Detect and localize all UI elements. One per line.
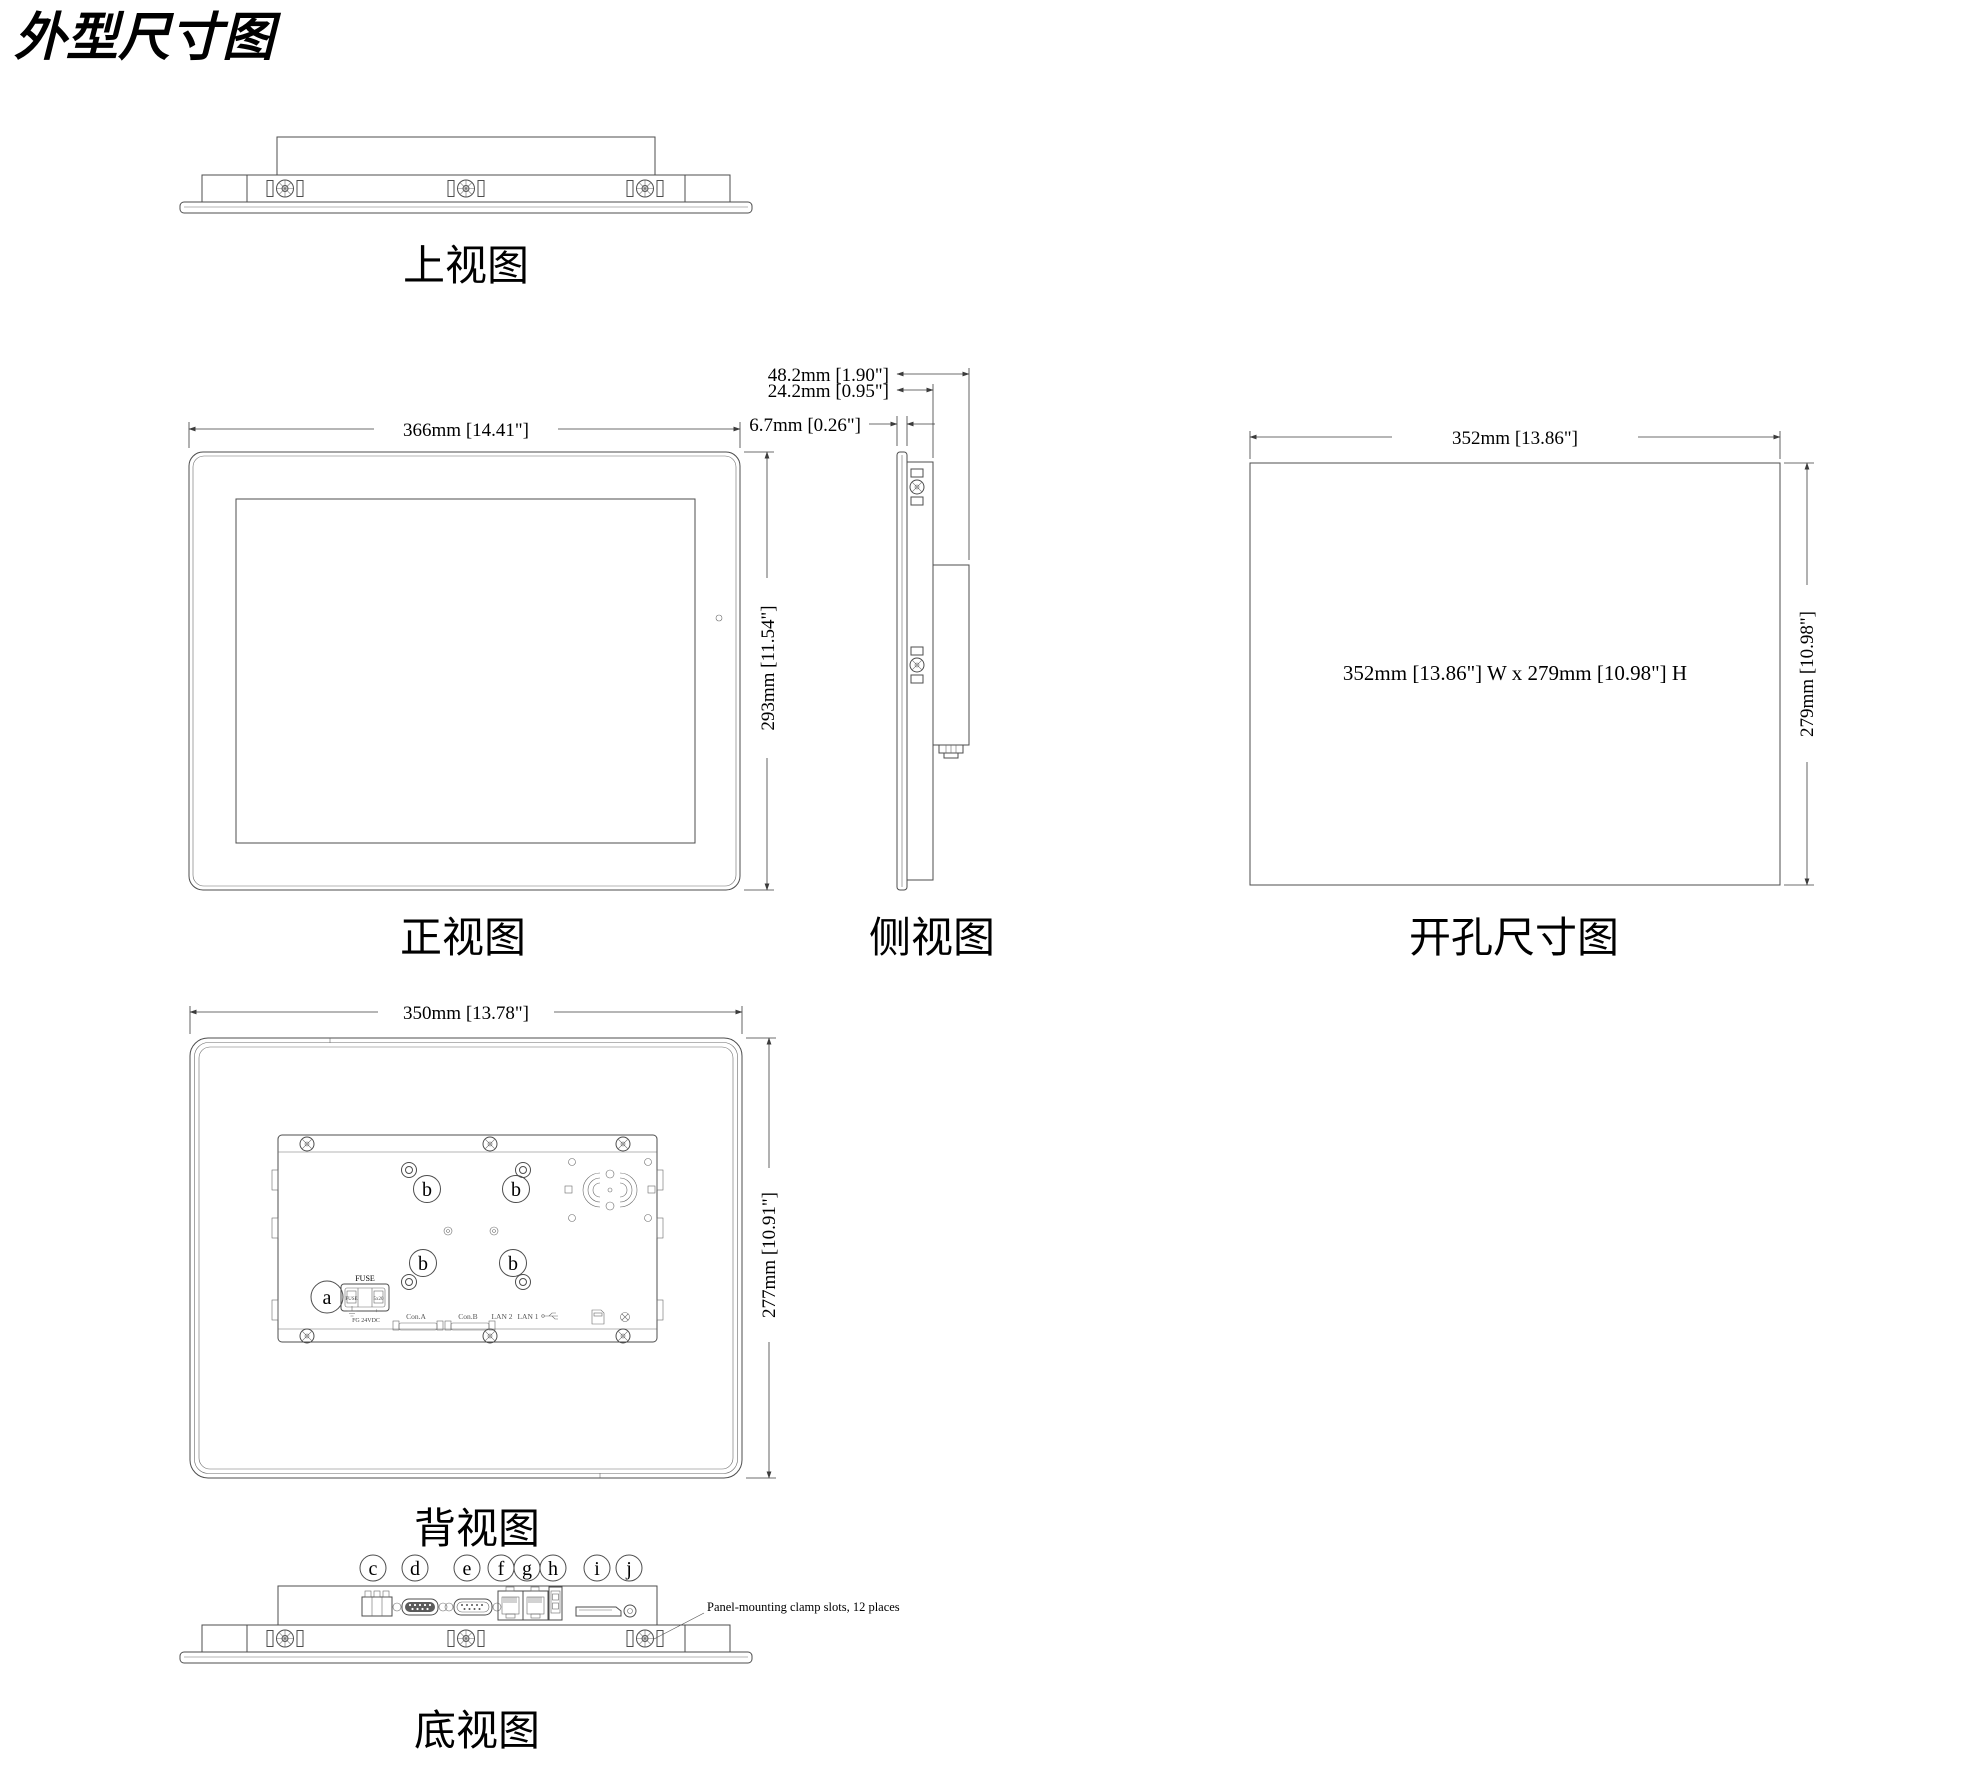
screw-icon bbox=[616, 1329, 630, 1343]
view-rear: b b b b a bbox=[190, 1003, 780, 1553]
port-label-lan1: LAN 1 bbox=[517, 1312, 538, 1321]
note-leader-line bbox=[654, 1613, 704, 1639]
view-bottom: c d e f g h i j bbox=[180, 1555, 900, 1755]
side-view-label: 侧视图 bbox=[869, 916, 995, 962]
sd-card-slot bbox=[576, 1607, 621, 1616]
fuse-size-label: 5x20 bbox=[374, 1297, 385, 1302]
housing-tab bbox=[657, 1300, 663, 1320]
fuse-inner-label: FUSE bbox=[345, 1297, 357, 1302]
callout-b: b bbox=[414, 1176, 441, 1203]
db9-silhouette bbox=[445, 1321, 495, 1330]
top-front-flange bbox=[180, 202, 752, 213]
side-bezel-dim: 6.7mm [0.26"] bbox=[749, 415, 861, 436]
side-rear-housing bbox=[933, 565, 969, 745]
cutout-note: 352mm [13.86"] W x 279mm [10.98"] H bbox=[1343, 661, 1687, 685]
clamp-screw-icon bbox=[267, 1630, 303, 1647]
rear-width-dim: 350mm [13.78"] bbox=[403, 1003, 529, 1024]
fuse-label: FUSE bbox=[355, 1274, 375, 1283]
top-view-label: 上视图 bbox=[403, 244, 529, 290]
cutout-width-dim: 352mm [13.86"] bbox=[1452, 428, 1578, 449]
callout-d: d bbox=[402, 1555, 428, 1581]
callout-e-label: e bbox=[463, 1558, 472, 1580]
clamp-screw-icon bbox=[267, 180, 303, 197]
callout-c: c bbox=[360, 1555, 386, 1581]
callout-c-label: c bbox=[369, 1558, 378, 1580]
callout-a-label: a bbox=[323, 1287, 332, 1309]
rear-outer-3 bbox=[199, 1047, 733, 1469]
port-label-con-a: Con.A bbox=[406, 1312, 426, 1321]
rear-outer-1 bbox=[190, 1038, 742, 1478]
front-led-hole bbox=[716, 615, 722, 621]
callout-b-label: b bbox=[511, 1179, 521, 1201]
power-label: FG 24VDC bbox=[352, 1318, 380, 1324]
rear-view-label: 背视图 bbox=[414, 1507, 540, 1553]
screw-icon bbox=[300, 1329, 314, 1343]
clamp-screw-icon bbox=[448, 180, 484, 197]
front-bezel-outer bbox=[189, 452, 740, 890]
db9-silhouette bbox=[393, 1321, 443, 1330]
housing-tab bbox=[272, 1218, 278, 1238]
callout-b: b bbox=[500, 1250, 527, 1277]
ground-symbol-icon bbox=[348, 1306, 357, 1316]
side-depth-mid-dim: 24.2mm [0.95"] bbox=[768, 381, 889, 402]
view-top: 上视图 bbox=[180, 137, 752, 290]
side-connector-pins bbox=[946, 745, 956, 753]
rear-height-dim: 277mm [10.91"] bbox=[759, 1192, 780, 1318]
view-front: 366mm [14.41"] 293mm [11.54"] 正视图 bbox=[189, 420, 779, 962]
side-clamp-icon bbox=[910, 647, 924, 683]
callout-b: b bbox=[503, 1176, 530, 1203]
callout-b: b bbox=[410, 1250, 437, 1277]
side-clamp-icon bbox=[910, 469, 924, 505]
small-hole-icon bbox=[490, 1227, 498, 1235]
side-bottom-connector-tab bbox=[944, 753, 958, 758]
front-width-dim: 366mm [14.41"] bbox=[403, 420, 529, 441]
housing-tab bbox=[272, 1170, 278, 1190]
speaker-grille-icon bbox=[565, 1159, 655, 1222]
screw-icon bbox=[483, 1137, 497, 1151]
cutout-height-dim: 279mm [10.98"] bbox=[1797, 611, 1818, 737]
view-cutout: 352mm [13.86"] 279mm [10.98"] 352mm [13.… bbox=[1250, 428, 1818, 962]
housing-tab bbox=[272, 1300, 278, 1320]
callout-b-label: b bbox=[422, 1179, 432, 1201]
polarity-label: + − bbox=[375, 1309, 384, 1315]
clamp-screw-icon bbox=[627, 1630, 663, 1647]
power-terminal-block: FUSE 5x20 bbox=[341, 1284, 389, 1311]
callout-e: e bbox=[454, 1555, 480, 1581]
bottom-front-flange bbox=[180, 1652, 752, 1663]
sd-slot-icon bbox=[592, 1310, 604, 1324]
callout-i: i bbox=[584, 1555, 610, 1581]
ground-screw-icon bbox=[621, 1313, 630, 1322]
callout-g: g bbox=[514, 1555, 540, 1581]
port-label-lan2: LAN 2 bbox=[491, 1312, 512, 1321]
small-hole-icon bbox=[444, 1227, 452, 1235]
db9-female-connector bbox=[393, 1599, 447, 1615]
callout-f: f bbox=[488, 1555, 514, 1581]
callout-h: h bbox=[540, 1555, 566, 1581]
callout-a: a bbox=[311, 1281, 343, 1313]
bottom-view-label: 底视图 bbox=[414, 1709, 540, 1755]
front-screen bbox=[236, 499, 695, 843]
screw-icon bbox=[300, 1137, 314, 1151]
callout-g-label: g bbox=[522, 1558, 532, 1580]
view-side: 48.2mm [1.90"] 24.2mm [0.95"] 6.7mm [0.2… bbox=[749, 365, 995, 962]
usb-icon bbox=[542, 1313, 558, 1319]
vesa-hole-icon bbox=[402, 1163, 417, 1178]
audio-jack-connector bbox=[624, 1605, 636, 1617]
callout-b-label: b bbox=[418, 1253, 428, 1275]
clamp-screw-icon bbox=[627, 180, 663, 197]
front-height-dim: 293mm [11.54"] bbox=[758, 605, 779, 730]
screw-icon bbox=[483, 1329, 497, 1343]
dimension-drawing-page: 外型尺寸图 上视图 366mm [14.41"] 293mm [11.54"] … bbox=[0, 0, 1980, 1776]
rj45-dual-connector bbox=[498, 1587, 548, 1620]
top-rear-housing bbox=[277, 137, 655, 175]
callout-j: j bbox=[616, 1555, 642, 1581]
vesa-hole-icon bbox=[516, 1275, 531, 1290]
callout-h-label: h bbox=[548, 1558, 558, 1580]
drawing-canvas: 外型尺寸图 上视图 366mm [14.41"] 293mm [11.54"] … bbox=[0, 0, 1980, 1776]
callout-d-label: d bbox=[410, 1558, 420, 1580]
vesa-hole-icon bbox=[402, 1275, 417, 1290]
page-title: 外型尺寸图 bbox=[14, 10, 282, 67]
callout-i-label: i bbox=[594, 1558, 600, 1580]
housing-tab bbox=[657, 1218, 663, 1238]
usb-port-connector bbox=[549, 1587, 562, 1620]
power-terminal-connector bbox=[362, 1591, 392, 1616]
rear-outer-2 bbox=[195, 1043, 738, 1474]
port-label-con-b: Con.B bbox=[458, 1312, 477, 1321]
housing-tab bbox=[657, 1170, 663, 1190]
db9-male-connector bbox=[445, 1599, 501, 1615]
front-view-label: 正视图 bbox=[400, 916, 526, 962]
clamp-screw-icon bbox=[448, 1630, 484, 1647]
callout-f-label: f bbox=[498, 1558, 505, 1580]
front-bezel-inner bbox=[193, 456, 736, 886]
callout-j-label: j bbox=[625, 1558, 632, 1580]
mounting-note: Panel-mounting clamp slots, 12 places bbox=[707, 1600, 900, 1614]
screw-icon bbox=[616, 1137, 630, 1151]
cutout-view-label: 开孔尺寸图 bbox=[1409, 916, 1619, 962]
callout-b-label: b bbox=[508, 1253, 518, 1275]
